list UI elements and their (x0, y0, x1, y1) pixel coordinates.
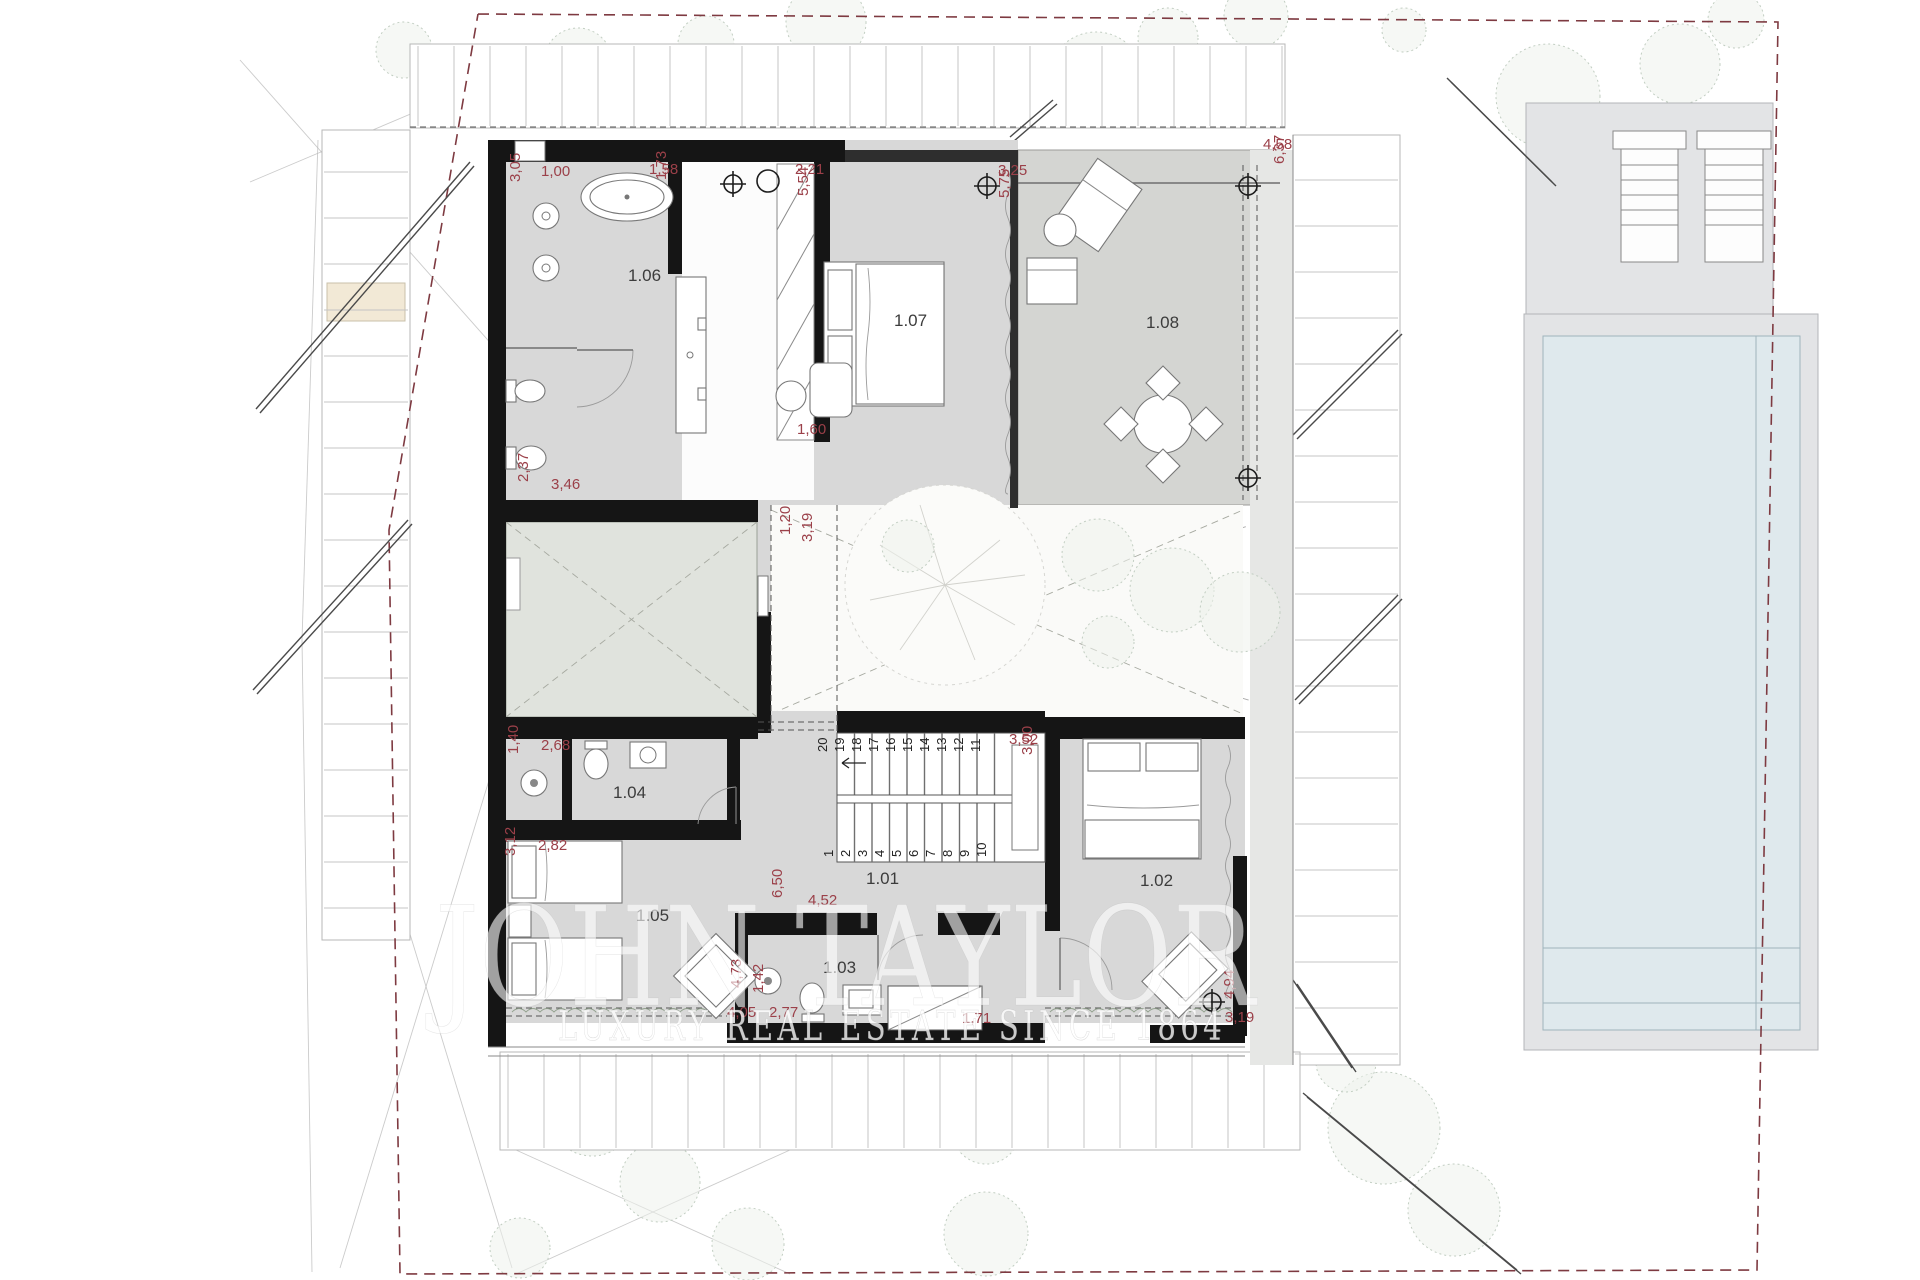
dimension-label: 5,54 (795, 167, 812, 196)
dimension-label: 1,20 (777, 506, 794, 535)
stair-step-number: 13 (934, 738, 949, 752)
room-label: 1.08 (1146, 313, 1179, 332)
room-label: 1.06 (628, 266, 661, 285)
stair-step-number: 3 (855, 850, 870, 857)
dimension-label: 3,12 (502, 827, 519, 856)
stair-step-number: 14 (917, 738, 932, 752)
dimension-label: 1,40 (505, 725, 522, 754)
stair-step-number: 11 (968, 739, 983, 753)
stair-step-number: 15 (900, 738, 915, 752)
stair-step-number: 10 (974, 843, 989, 857)
dimension-label: 5,75 (996, 169, 1013, 198)
washbasin (533, 203, 559, 229)
dimension-label: 2,37 (515, 453, 532, 482)
door-leaf (758, 576, 768, 616)
stair-step-number: 19 (832, 738, 847, 752)
sun-lounger (1613, 131, 1686, 262)
floor-plan-drawing: 2019181716151413121112345678910 3,051,00… (0, 0, 1920, 1280)
armchair (1027, 258, 1077, 304)
pool-water (1543, 336, 1800, 1030)
double-bed (1083, 739, 1201, 859)
pool-area (1524, 103, 1818, 1050)
stair-step-number: 12 (951, 738, 966, 752)
watermark-tagline: LUXURY REAL ESTATE SINCE 1864 (558, 1002, 1226, 1050)
vanity-counter (676, 277, 706, 433)
toilet (584, 741, 608, 779)
stair-step-number: 4 (872, 850, 887, 857)
stair-step-number: 5 (889, 850, 904, 857)
floor-plan-page: 2019181716151413121112345678910 3,051,00… (0, 0, 1920, 1280)
dimension-label: 3,46 (551, 476, 580, 493)
sink (630, 742, 666, 768)
stair-step-number: 20 (815, 738, 830, 752)
dimension-label: 6,37 (1271, 135, 1288, 164)
stair-step-number: 17 (866, 738, 881, 752)
stair-step-number: 1 (821, 850, 836, 857)
stair-step-number: 2 (838, 850, 853, 857)
dimension-label: 3,05 (507, 153, 524, 182)
stair-step-number: 18 (849, 738, 864, 752)
stair-step-number: 9 (957, 850, 972, 857)
stair-step-number: 16 (883, 738, 898, 752)
dimension-label: 1,00 (541, 163, 570, 180)
sun-lounger (1697, 131, 1771, 262)
stair-step-number: 6 (906, 850, 921, 857)
dimension-label: 1,73 (653, 151, 670, 180)
dimension-label: 1,60 (797, 421, 826, 438)
bidet (506, 380, 545, 402)
watermark: JOHN TAYLOR LUXURY REAL ESTATE SINCE 186… (425, 877, 1258, 1050)
ottoman (776, 381, 806, 411)
washbasin (533, 255, 559, 281)
dimension-label: 3,00 (1019, 726, 1036, 755)
dimension-label: 2,82 (538, 837, 567, 854)
stair-step-number: 7 (923, 850, 938, 857)
room-label: 1.07 (894, 311, 927, 330)
dimension-label: 3,19 (799, 513, 816, 542)
stair-step-number: 8 (940, 850, 955, 857)
side-table (1044, 214, 1076, 246)
accent-slat (327, 283, 405, 321)
room-label: 1.04 (613, 783, 646, 802)
dimension-label: 2,68 (541, 737, 570, 754)
